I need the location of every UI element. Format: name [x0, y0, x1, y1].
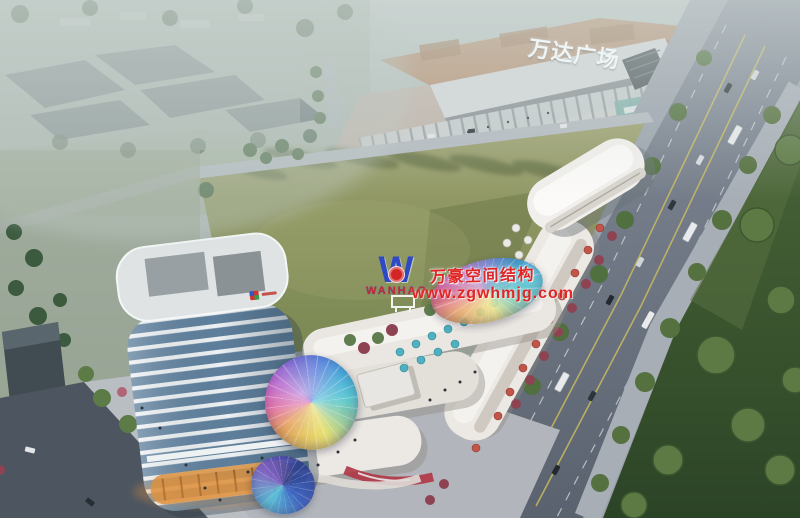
- roof-plant-unit: [145, 252, 209, 297]
- watermark-url: www.zgwhmjg.com: [412, 285, 574, 303]
- watermark-logo-circle: [388, 266, 405, 283]
- roof-plant-unit: [213, 251, 266, 297]
- watermark-title: 万豪空间结构: [430, 261, 536, 288]
- aerial-rendering: 万达广场 W WANHAO 万豪空间结构 www.zgwhmjg.com: [0, 0, 800, 518]
